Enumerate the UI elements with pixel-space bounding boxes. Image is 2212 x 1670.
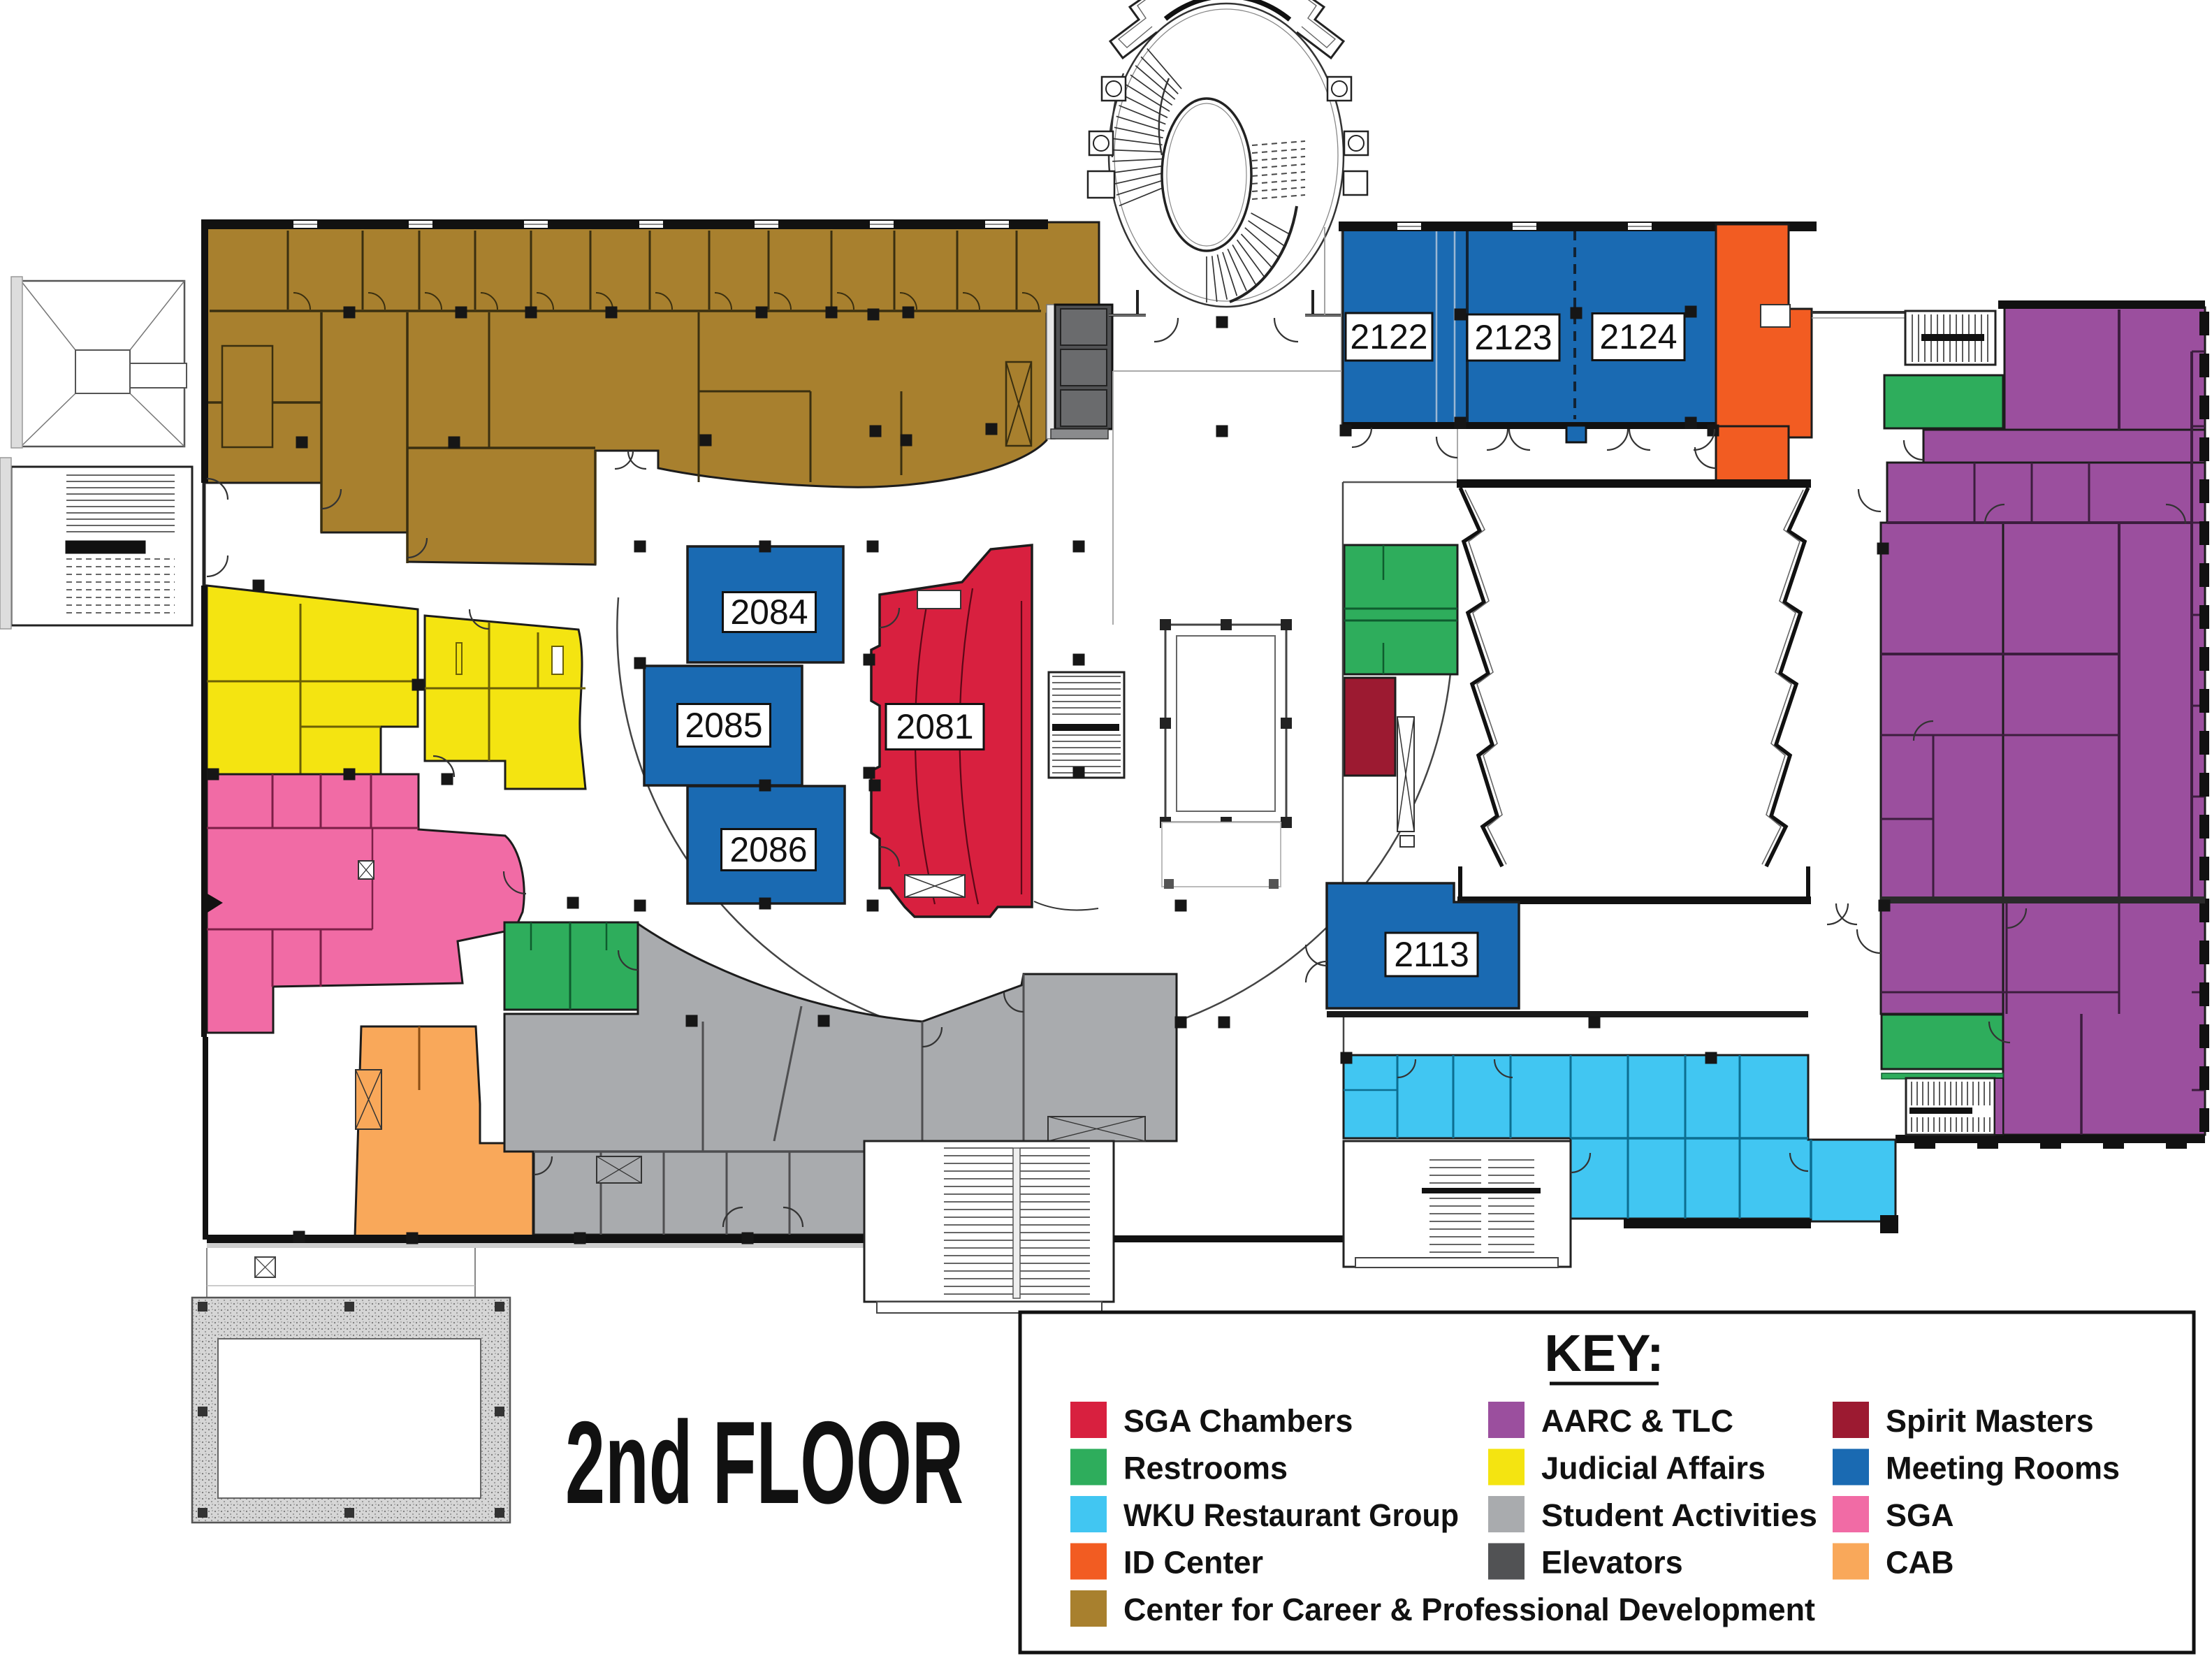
svg-text:Spirit Masters: Spirit Masters	[1886, 1403, 2094, 1439]
svg-text:2086: 2086	[729, 830, 807, 869]
svg-text:Elevators: Elevators	[1541, 1545, 1683, 1581]
svg-text:SGA Chambers: SGA Chambers	[1123, 1403, 1353, 1439]
svg-text:2124: 2124	[1599, 317, 1677, 356]
svg-text:2nd FLOOR: 2nd FLOOR	[565, 1397, 963, 1528]
svg-text:2123: 2123	[1474, 318, 1552, 357]
svg-text:2081: 2081	[896, 707, 973, 746]
svg-text:2085: 2085	[685, 706, 762, 745]
svg-text:Restrooms: Restrooms	[1123, 1451, 1288, 1486]
svg-text:Center for Career & Profession: Center for Career & Professional Develop…	[1123, 1592, 1815, 1627]
svg-text:Student Activities: Student Activities	[1541, 1497, 1817, 1533]
svg-text:CAB: CAB	[1886, 1545, 1954, 1581]
svg-text:Judicial Affairs: Judicial Affairs	[1541, 1451, 1766, 1486]
svg-text:SGA: SGA	[1886, 1497, 1954, 1533]
svg-text:WKU Restaurant Group: WKU Restaurant Group	[1123, 1497, 1459, 1533]
svg-text:2113: 2113	[1394, 935, 1469, 974]
svg-text:ID Center: ID Center	[1123, 1545, 1263, 1581]
svg-text:AARC & TLC: AARC & TLC	[1541, 1403, 1733, 1439]
svg-text:KEY:: KEY:	[1544, 1324, 1664, 1382]
svg-text:2084: 2084	[730, 593, 808, 632]
svg-text:Meeting Rooms: Meeting Rooms	[1886, 1451, 2120, 1486]
svg-text:2122: 2122	[1350, 317, 1427, 356]
